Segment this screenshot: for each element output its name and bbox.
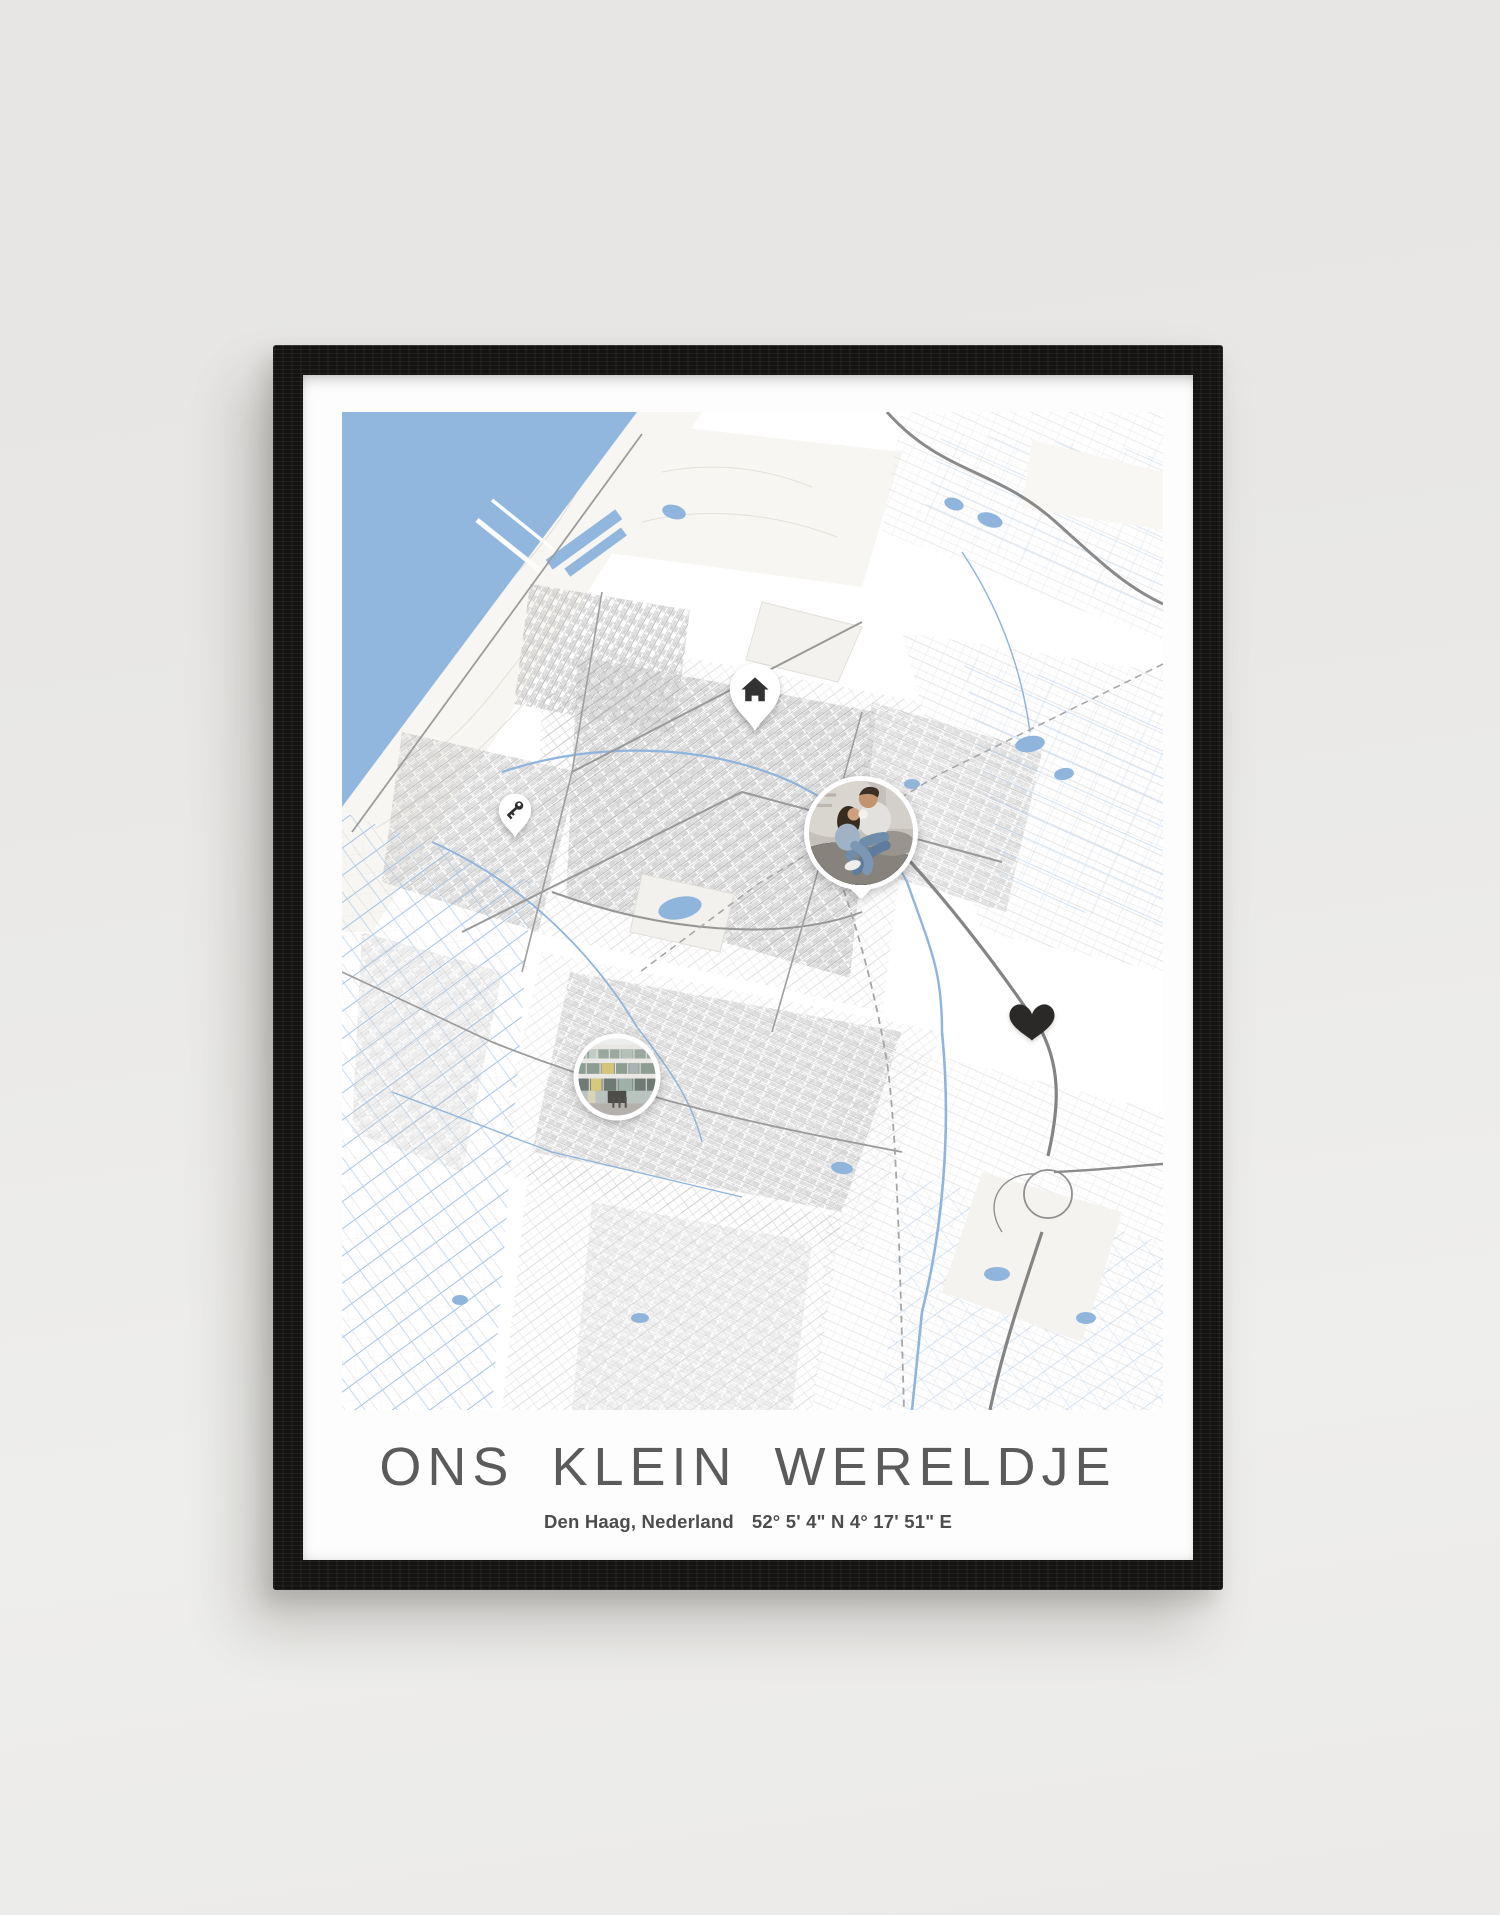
building-photo: [579, 1038, 656, 1115]
map-pin-shape: [497, 792, 533, 838]
map-area: [342, 412, 1163, 1410]
key-pin: [497, 792, 533, 838]
poster-title: ONS KLEIN WERELDJE: [303, 1440, 1193, 1494]
poster-frame: ONS KLEIN WERELDJE Den Haag, Nederland52…: [273, 345, 1223, 1590]
heart-icon: [1008, 1001, 1055, 1043]
heart-marker: [1008, 1001, 1055, 1043]
city-map: [342, 412, 1163, 1410]
poster-caption: ONS KLEIN WERELDJE Den Haag, Nederland52…: [303, 1410, 1193, 1560]
poster-subtitle: Den Haag, Nederland52° 5' 4" N 4° 17' 51…: [303, 1511, 1193, 1533]
product-photo-scene: ONS KLEIN WERELDJE Den Haag, Nederland52…: [0, 0, 1500, 1915]
poster-coordinates: 52° 5' 4" N 4° 17' 51" E: [752, 1511, 952, 1532]
map-poster: ONS KLEIN WERELDJE Den Haag, Nederland52…: [303, 375, 1193, 1560]
couple-photo: [809, 781, 913, 885]
poster-location: Den Haag, Nederland: [544, 1511, 734, 1532]
photo-marker-couple: [804, 776, 918, 890]
home-pin: [727, 660, 783, 734]
photo-marker-building: [574, 1033, 661, 1120]
map-pin-shape: [727, 660, 783, 734]
